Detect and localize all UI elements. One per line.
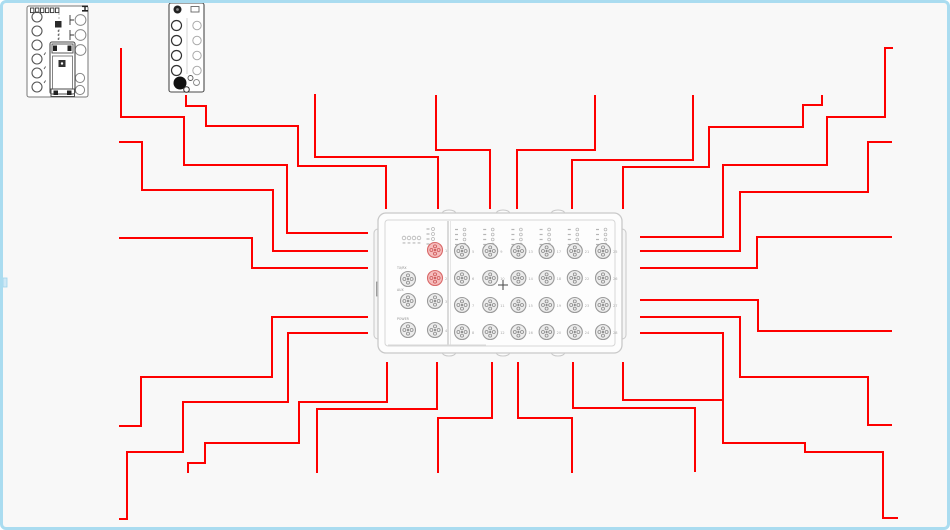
port-aux[interactable] [401,294,416,309]
port-pin-center [489,250,491,252]
port-pin-center [602,250,604,252]
port-number: 24 [585,331,590,335]
port-number: 18 [557,277,561,281]
wire-left-3[interactable] [119,238,368,268]
port-number: 27 [613,304,617,308]
port-pin-center [574,250,576,252]
wire-top-4[interactable] [517,95,595,209]
port-number: 9 [500,250,502,254]
wire-top-5[interactable] [572,95,693,209]
module-b-wire-terminal [184,87,190,93]
port-pin-center [461,304,463,306]
port-pin-center [546,304,548,306]
port-tx-rx[interactable] [401,272,416,287]
indicator-dot [58,30,60,32]
devices-layer: TX/RXAUXPOWER123456789101112131415161718… [27,3,626,356]
port-pin-center [517,277,519,279]
port-label: TX/RX [396,266,407,270]
port-pin-center [574,331,576,333]
port-number: 13 [528,250,532,254]
port-number: 14 [528,277,533,281]
port-number: 17 [557,250,561,254]
canvas-edge-handle[interactable] [3,278,7,287]
port-20[interactable] [539,325,554,340]
port-power[interactable] [401,323,416,338]
port-number: 6 [472,277,474,281]
port-number: 21 [585,250,589,254]
diagram-canvas-frame: TX/RXAUXPOWER123456789101112131415161718… [0,0,950,530]
port-pin-center [434,277,436,279]
port-label: POWER [397,317,410,321]
indicator-dot [58,38,60,40]
port-4[interactable] [428,323,443,338]
port-number: 7 [472,304,474,308]
port-pin-center [574,304,576,306]
port-18[interactable] [539,271,554,286]
insert-screw [68,46,72,52]
port-number: 15 [528,304,532,308]
port-pin-center [546,277,548,279]
wire-bottom-6[interactable] [623,362,722,400]
central-io-device[interactable]: TX/RXAUXPOWER123456789101112131415161718… [374,210,626,356]
port-pin-center [517,331,519,333]
port-22[interactable] [567,271,582,286]
port-pin-center [434,249,436,251]
port-pin-center [602,277,604,279]
wire-right-4[interactable] [640,300,892,331]
wire-left-1[interactable] [121,48,368,233]
port-pin-center [489,304,491,306]
port-number: 3 [445,300,447,304]
insert-block-dot [61,62,63,64]
port-11[interactable] [483,298,498,313]
port-pin-center [602,331,604,333]
port-6[interactable] [455,271,470,286]
wire-right-2[interactable] [640,142,892,251]
port-pin-center [407,300,409,302]
port-10[interactable] [483,271,498,286]
port-7[interactable] [455,298,470,313]
port-number: 5 [472,250,474,254]
port-16[interactable] [511,325,526,340]
port-number: 10 [500,277,504,281]
port-8[interactable] [455,325,470,340]
module-a[interactable] [27,6,88,98]
port-pin-center [602,304,604,306]
port-pin-center [489,277,491,279]
port-1-highlighted[interactable] [428,243,443,258]
port-number: 22 [585,277,589,281]
port-3[interactable] [428,294,443,309]
wire-bottom-3[interactable] [438,362,492,473]
port-number: 8 [472,331,474,335]
port-pin-center [574,277,576,279]
port-13[interactable] [511,244,526,259]
port-24[interactable] [567,325,582,340]
indicator-dot [58,34,60,36]
port-number: 26 [613,277,617,281]
port-19[interactable] [539,298,554,313]
module-a-chip [55,21,62,28]
wire-bottom-4[interactable] [518,362,572,473]
module-b-body [169,3,204,92]
port-pin-center [461,331,463,333]
port-26[interactable] [596,271,611,286]
port-15[interactable] [511,298,526,313]
port-12[interactable] [483,325,498,340]
port-pin-center [546,250,548,252]
port-pin-center [407,278,409,280]
port-number: 1 [445,249,447,253]
wire-right-6[interactable] [640,333,898,518]
wire-bottom-5[interactable] [573,362,695,472]
port-27[interactable] [596,298,611,313]
port-number: 20 [557,331,561,335]
port-17[interactable] [539,244,554,259]
foot-screw [54,91,59,96]
wiring-canvas[interactable]: TX/RXAUXPOWER123456789101112131415161718… [3,3,947,527]
port-pin-center [461,277,463,279]
insert-screw [53,46,57,52]
port-14[interactable] [511,271,526,286]
port-pin-center [517,250,519,252]
port-number: 12 [500,331,504,335]
port-21[interactable] [567,244,582,259]
port-number: 11 [500,304,504,308]
port-number: 25 [613,250,617,254]
wire-left-5[interactable] [119,333,368,519]
module-b[interactable] [169,3,204,92]
wire-top-3[interactable] [436,95,490,209]
port-number: 23 [585,304,589,308]
wire-top-2[interactable] [315,94,438,209]
port-number: 19 [557,304,561,308]
port-number: 28 [613,331,617,335]
port-23[interactable] [567,298,582,313]
port-label: AUX [397,288,405,292]
port-pin-center [407,329,409,331]
port-pin-center [461,250,463,252]
port-pin-center [546,331,548,333]
wire-right-1[interactable] [640,48,893,237]
port-pin-center [517,304,519,306]
wire-left-2[interactable] [119,142,368,251]
port-5[interactable] [455,244,470,259]
port-pin-center [434,300,436,302]
port-pin-center [434,329,436,331]
port-28[interactable] [596,325,611,340]
port-25[interactable] [596,244,611,259]
port-2-highlighted[interactable] [428,271,443,286]
wire-bottom-2[interactable] [317,362,437,473]
port-number: 16 [528,331,532,335]
port-pin-center [489,331,491,333]
port-number: 2 [445,277,447,281]
port-9[interactable] [483,244,498,259]
module-b-led-core [176,8,179,11]
foot-screw [67,91,72,96]
wire-right-3[interactable] [640,237,892,268]
